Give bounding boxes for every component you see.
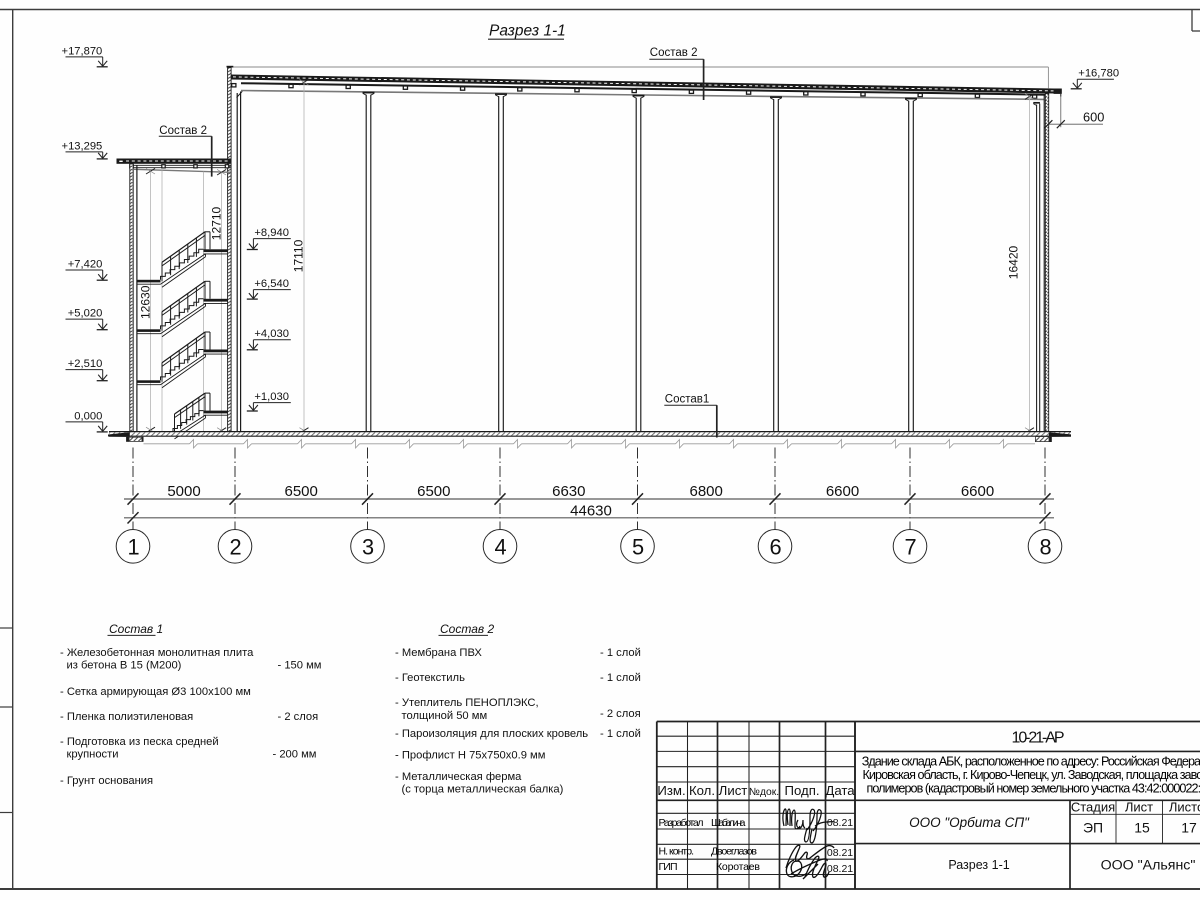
svg-text:- Подготовка из песка средней: - Подготовка из песка средней xyxy=(60,736,219,748)
svg-text:Лист: Лист xyxy=(719,783,748,798)
svg-text:(с торца металлическая балка): (с торца металлическая балка) xyxy=(402,784,564,796)
svg-text:+6,540: +6,540 xyxy=(254,278,289,290)
svg-text:из бетона В 15 (М200): из бетона В 15 (М200) xyxy=(67,660,182,672)
svg-text:- 200 мм: - 200 мм xyxy=(273,749,317,761)
svg-text:5: 5 xyxy=(632,534,644,559)
svg-text:- Грунт основания: - Грунт основания xyxy=(60,775,153,787)
svg-text:4: 4 xyxy=(494,534,506,559)
svg-text:15: 15 xyxy=(1134,820,1150,836)
svg-text:5000: 5000 xyxy=(167,483,200,500)
svg-text:толщиной 50 мм: толщиной 50 мм xyxy=(402,710,488,722)
svg-text:Н. контр.: Н. контр. xyxy=(659,846,695,858)
svg-text:3: 3 xyxy=(362,534,374,559)
svg-text:0,000: 0,000 xyxy=(74,410,102,422)
svg-text:- Профлист Н 75х750х0.9 мм: - Профлист Н 75х750х0.9 мм xyxy=(395,750,545,762)
svg-text:08.21: 08.21 xyxy=(827,863,853,875)
svg-text:17110: 17110 xyxy=(292,239,306,272)
svg-text:12710: 12710 xyxy=(209,206,223,240)
svg-text:Кировская область, г. Кирово-Ч: Кировская область, г. Кирово-Чепецк, ул.… xyxy=(863,768,1200,782)
svg-text:+16,780: +16,780 xyxy=(1078,68,1119,80)
svg-text:- Пароизоляция для плоских кро: - Пароизоляция для плоских кровель xyxy=(395,728,588,740)
svg-text:Разработал: Разработал xyxy=(659,817,704,829)
svg-text:- Сетка армирующая Ø3 100х100: - Сетка армирующая Ø3 100х100 мм xyxy=(60,686,251,698)
svg-text:8: 8 xyxy=(1039,534,1051,559)
svg-text:08.21: 08.21 xyxy=(827,847,853,859)
svg-text:Кол.: Кол. xyxy=(689,783,715,798)
svg-text:- Металлическая ферма: - Металлическая ферма xyxy=(395,771,522,783)
svg-text:ЭП: ЭП xyxy=(1083,820,1103,836)
svg-text:Разрез 1-1: Разрез 1-1 xyxy=(489,23,566,40)
svg-text:Подп.: Подп. xyxy=(784,783,819,798)
svg-text:+13,295: +13,295 xyxy=(62,140,103,152)
svg-text:Состав 2: Состав 2 xyxy=(650,47,698,59)
svg-text:Стадия: Стадия xyxy=(1071,800,1115,815)
svg-text:полимеров (кадастровый номер з: полимеров (кадастровый номер земельного … xyxy=(867,781,1200,795)
svg-text:Состав 2: Состав 2 xyxy=(159,125,207,137)
svg-text:+2,510: +2,510 xyxy=(68,358,103,370)
svg-text:+17,870: +17,870 xyxy=(62,45,103,57)
svg-text:- 2 слоя: - 2 слоя xyxy=(278,711,319,723)
svg-text:6500: 6500 xyxy=(417,483,450,500)
svg-text:10-21-АР: 10-21-АР xyxy=(1012,730,1065,747)
svg-text:Разрез 1-1: Разрез 1-1 xyxy=(948,858,1009,872)
svg-text:6500: 6500 xyxy=(285,483,318,500)
svg-text:Состав1: Состав1 xyxy=(665,394,710,406)
svg-text:Здание склада АБК, расположенн: Здание склада АБК, расположенное по адре… xyxy=(862,754,1200,768)
svg-text:2: 2 xyxy=(229,534,241,559)
svg-text:Шабалина: Шабалина xyxy=(711,817,746,829)
svg-text:6: 6 xyxy=(769,534,781,559)
svg-text:Коротаев: Коротаев xyxy=(716,861,760,873)
svg-text:6600: 6600 xyxy=(826,483,859,500)
svg-text:- 1 слой: - 1 слой xyxy=(600,728,641,740)
svg-text:Состав 1: Состав 1 xyxy=(109,622,163,636)
svg-text:- Утеплитель ПЕНОПЛЭКС,: - Утеплитель ПЕНОПЛЭКС, xyxy=(395,697,539,709)
svg-text:ООО "Орбита СП": ООО "Орбита СП" xyxy=(909,815,1030,830)
svg-text:+4,030: +4,030 xyxy=(254,328,289,340)
svg-text:- 150 мм: - 150 мм xyxy=(278,660,322,672)
svg-text:- Пленка полиэтиленовая: - Пленка полиэтиленовая xyxy=(60,711,193,723)
svg-text:7: 7 xyxy=(904,534,916,559)
svg-text:- Геотекстиль: - Геотекстиль xyxy=(395,672,465,684)
svg-text:Дата: Дата xyxy=(825,783,855,798)
svg-text:- Железобетонная монолитная п: - Железобетонная монолитная плита xyxy=(60,647,254,659)
svg-text:Состав 2: Состав 2 xyxy=(440,622,494,636)
svg-text:крупности: крупности xyxy=(67,749,119,761)
svg-text:08.21: 08.21 xyxy=(827,817,853,829)
svg-text:600: 600 xyxy=(1083,110,1104,125)
svg-text:16420: 16420 xyxy=(1007,245,1021,279)
svg-text:ГИП: ГИП xyxy=(659,861,678,873)
svg-text:6600: 6600 xyxy=(961,483,994,500)
svg-text:6800: 6800 xyxy=(690,483,723,500)
svg-text:Изм.: Изм. xyxy=(657,783,685,798)
svg-text:+5,020: +5,020 xyxy=(68,308,103,320)
svg-text:Листов: Листов xyxy=(1169,800,1200,815)
svg-text:+8,940: +8,940 xyxy=(254,227,289,239)
svg-text:6630: 6630 xyxy=(552,483,585,500)
svg-text:44630: 44630 xyxy=(570,502,612,519)
svg-text:- 1 слой: - 1 слой xyxy=(600,672,641,684)
svg-text:+7,420: +7,420 xyxy=(68,258,103,270)
svg-text:+1,030: +1,030 xyxy=(254,391,289,403)
svg-text:12630: 12630 xyxy=(139,285,153,319)
svg-text:- 1 слой: - 1 слой xyxy=(600,647,641,659)
svg-text:Двоеглазов: Двоеглазов xyxy=(711,846,757,858)
svg-text:Лист: Лист xyxy=(1125,800,1153,815)
svg-text:17: 17 xyxy=(1181,820,1197,836)
svg-text:№док.: №док. xyxy=(749,787,779,798)
svg-text:ООО "Альянс": ООО "Альянс" xyxy=(1101,858,1196,874)
svg-text:1: 1 xyxy=(127,534,139,559)
svg-text:- 2 слоя: - 2 слоя xyxy=(600,708,641,720)
svg-text:- Мембрана ПВХ: - Мембрана ПВХ xyxy=(395,647,482,659)
